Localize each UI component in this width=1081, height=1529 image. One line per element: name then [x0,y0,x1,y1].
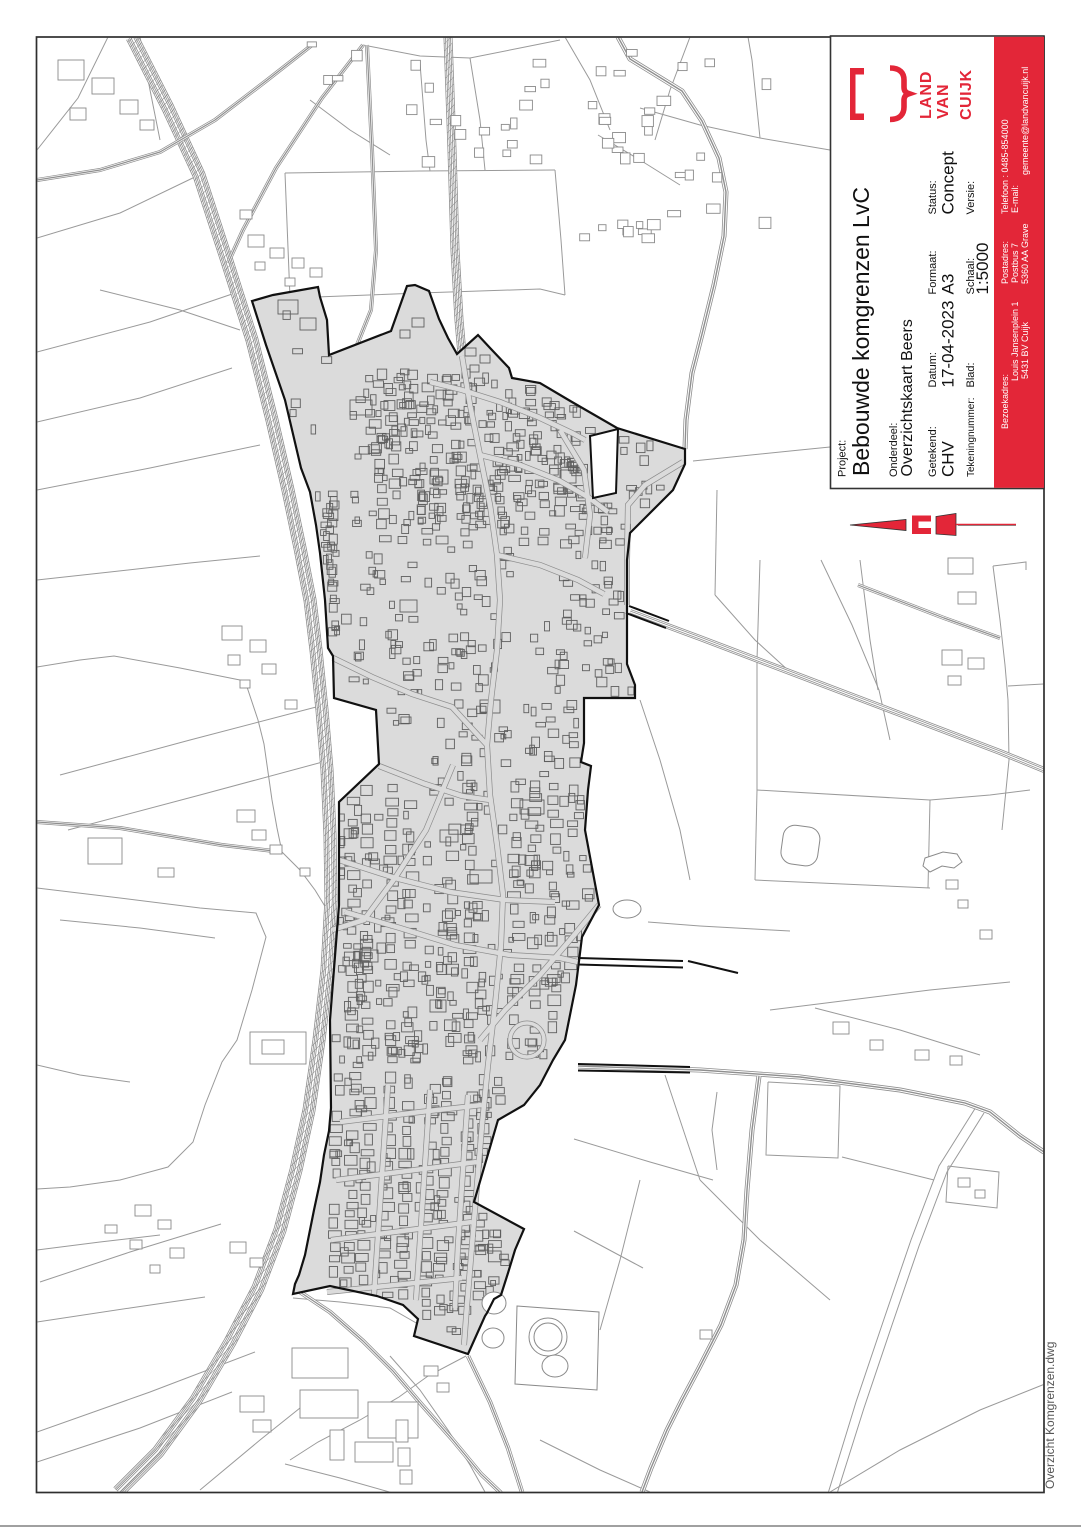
svg-text:Overzichtskaart Beers: Overzichtskaart Beers [899,319,916,476]
svg-text:Tekeningnummer:: Tekeningnummer: [966,398,977,477]
svg-text:17-04-2023: 17-04-2023 [939,301,958,388]
svg-text:Formaat:: Formaat: [927,250,939,294]
svg-text:Blad:: Blad: [965,362,977,387]
svg-text:CHV: CHV [939,440,958,477]
svg-text:VAN: VAN [935,83,952,119]
svg-text:gemeente@landvancuijk.nl: gemeente@landvancuijk.nl [1020,67,1030,175]
svg-text:Overzicht Komgrenzen.dwg: Overzicht Komgrenzen.dwg [1043,1342,1057,1489]
svg-text:Telefoon : 0485-854000: Telefoon : 0485-854000 [1000,119,1010,214]
svg-text:E-mail:: E-mail: [1010,185,1020,213]
svg-text:5431 BV Cuijk: 5431 BV Cuijk [1020,321,1030,379]
svg-text:CUIJK: CUIJK [958,69,975,120]
svg-text:5360 AA Grave: 5360 AA Grave [1020,223,1030,284]
svg-text:Status:: Status: [927,180,939,214]
svg-text:Versie:: Versie: [965,181,977,215]
svg-text:Bebouwde komgrenzen LvC: Bebouwde komgrenzen LvC [848,187,874,476]
svg-text:Postadres:: Postadres: [1000,241,1010,284]
svg-text:Datum:: Datum: [927,352,939,387]
svg-text:Louis Jansenplein 1: Louis Jansenplein 1 [1010,301,1020,381]
svg-text:Getekend:: Getekend: [927,426,939,477]
svg-text:1:5000: 1:5000 [973,243,992,295]
svg-text:Project:: Project: [837,440,849,477]
svg-text:Concept: Concept [939,151,958,215]
svg-text:LAND: LAND [918,71,935,119]
svg-text:A3: A3 [939,274,958,295]
svg-text:Bezoekadres:: Bezoekadres: [1000,374,1010,429]
svg-text:Postbus 7: Postbus 7 [1010,243,1020,283]
